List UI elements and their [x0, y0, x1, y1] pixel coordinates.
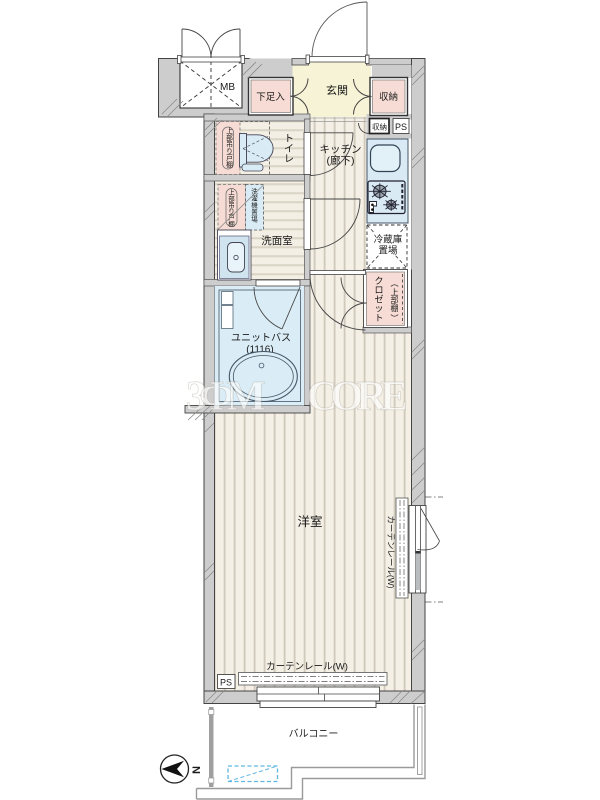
svg-text:洗面室: 洗面室 — [261, 234, 293, 247]
svg-text:カーテンレール(W): カーテンレール(W) — [386, 515, 396, 588]
svg-text:濯: 濯 — [251, 194, 258, 203]
svg-text:収納: 収納 — [372, 122, 387, 132]
svg-text:レ: レ — [284, 154, 294, 165]
svg-text:CORE: CORE — [307, 374, 408, 420]
svg-text:キッチン: キッチン — [320, 144, 362, 156]
svg-text:置場: 置場 — [378, 245, 398, 257]
svg-text:玄関: 玄関 — [326, 83, 348, 97]
svg-text:り: り — [226, 147, 233, 155]
svg-text:︶: ︶ — [391, 313, 399, 323]
svg-text:棚: 棚 — [228, 219, 235, 228]
svg-text:PS: PS — [220, 678, 232, 688]
svg-text:棚: 棚 — [391, 303, 399, 313]
svg-text:戸: 戸 — [226, 154, 233, 162]
svg-text:︵: ︵ — [391, 279, 399, 288]
svg-text:カーテンレール(W): カーテンレール(W) — [266, 662, 348, 673]
svg-text:MB: MB — [220, 82, 235, 93]
svg-text:置: 置 — [251, 209, 258, 217]
svg-text:ト: ト — [374, 313, 383, 323]
svg-text:バルコニー: バルコニー — [289, 728, 339, 740]
svg-text:下足入: 下足入 — [256, 92, 285, 103]
svg-text:機: 機 — [251, 201, 258, 210]
svg-text:N: N — [190, 766, 202, 774]
svg-text:ユニットバス: ユニットバス — [231, 332, 291, 344]
svg-text:(廊下): (廊下) — [327, 154, 355, 167]
svg-text:吊: 吊 — [226, 141, 233, 149]
svg-text:部: 部 — [226, 133, 233, 142]
svg-text:棚: 棚 — [226, 160, 233, 169]
svg-text:3ΦM: 3ΦM — [186, 374, 266, 420]
svg-text:冷蔵庫: 冷蔵庫 — [374, 234, 403, 246]
svg-text:収納: 収納 — [379, 91, 398, 103]
svg-text:PS: PS — [395, 122, 407, 132]
svg-text:洋室: 洋室 — [297, 514, 322, 529]
svg-text:場: 場 — [251, 215, 258, 224]
svg-text:上: 上 — [226, 126, 233, 135]
